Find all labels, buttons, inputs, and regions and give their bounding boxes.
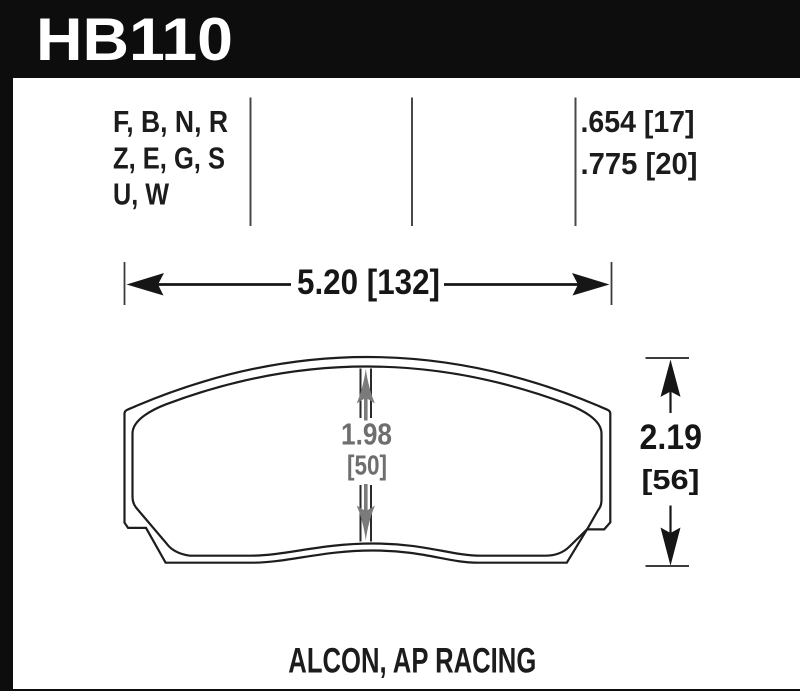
svg-text:2.19: 2.19 [640, 418, 703, 457]
svg-text:F, B, N, R: F, B, N, R [113, 104, 228, 139]
svg-text:U, W: U, W [113, 177, 170, 212]
svg-text:HB110: HB110 [36, 6, 233, 73]
svg-text:ALCON, AP RACING: ALCON, AP RACING [288, 642, 536, 681]
svg-text:[50]: [50] [347, 450, 387, 481]
svg-text:.775 [20]: .775 [20] [581, 146, 698, 181]
svg-text:[56]: [56] [642, 464, 700, 495]
svg-text:5.20 [132]: 5.20 [132] [297, 263, 440, 302]
svg-text:1.98: 1.98 [341, 417, 392, 452]
svg-text:.654 [17]: .654 [17] [581, 104, 695, 139]
svg-text:Z, E, G, S: Z, E, G, S [113, 141, 225, 176]
